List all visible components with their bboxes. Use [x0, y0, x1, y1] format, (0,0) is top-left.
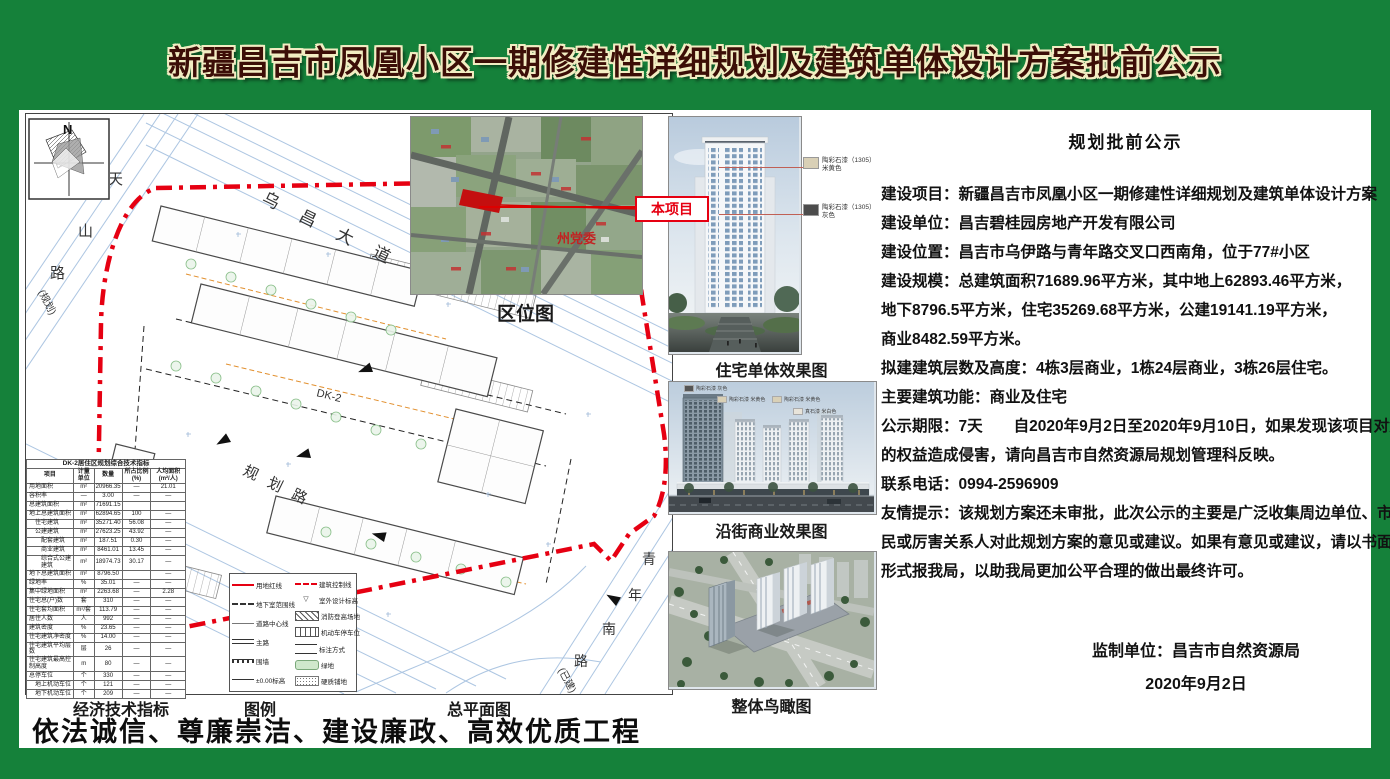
legend-symbol-mainroad — [232, 639, 254, 644]
eco-table-row: 住宅建筑平均层数层26—— — [27, 642, 186, 657]
notice-line: 建设规模：总建筑面积71689.96平方米，其中地上62893.46平方米， — [881, 267, 1370, 296]
residential-caption: 住宅单体效果图 — [668, 357, 875, 381]
eco-table-row: 住宅建筑最高控制高度m80—— — [27, 657, 186, 672]
legend-label: 主路 — [256, 637, 269, 647]
legend-col-2: 建筑控制线▽室外设计标高消防登高场地机动车停车位标注方式绿地硬质铺地 — [295, 576, 360, 689]
compass: N — [28, 118, 110, 200]
notice-line: 拟建建筑层数及高度：4栋3层商业，1栋24层商业，3栋26层住宅。 — [881, 354, 1370, 383]
legend-label: 绿地 — [321, 660, 334, 670]
commercial-rendering-image: 陶彩石漆 灰色陶彩石漆 米黄色陶彩石漆 米黄色真石漆 米白色 — [668, 381, 877, 515]
material-name: 陶彩石漆（1305） — [822, 204, 875, 211]
eco-table-row: 商业建筑m²8461.0113.45— — [27, 546, 186, 555]
site-leader-line — [479, 206, 637, 208]
legend-item: 机动车停车位 — [295, 627, 360, 637]
landmark-label: 州党委 — [556, 231, 596, 246]
legend-symbol-paving — [295, 676, 319, 686]
notice-heading: 规划批前公示 — [881, 128, 1370, 153]
material-color: 灰色 — [822, 212, 835, 219]
legend-symbol-thin — [232, 623, 254, 624]
notice-line: 公示期限：7天 自2020年9月2日至2020年9月10日，如果发现该项目对您 — [881, 412, 1370, 441]
legend-symbol-spot: ▽ — [295, 596, 317, 604]
eco-table-row: 绿地率%35.01—— — [27, 579, 186, 588]
legend-item: 用地红线 — [232, 580, 295, 590]
eco-table-row: 建筑密度%23.65—— — [27, 624, 186, 633]
legend-symbol-redline — [232, 584, 254, 586]
eco-table-row: 总建筑面积m²71691.15 — [27, 501, 186, 510]
commercial-material-callout: 陶彩石漆 米黄色 — [717, 396, 765, 403]
eco-table-row: 住宅套均面积m²/套113.79—— — [27, 606, 186, 615]
svg-text:路: 路 — [50, 265, 65, 282]
planning-notice-poster: 新疆昌吉市凤凰小区一期修建性详细规划及建筑单体设计方案批前公示 — [0, 0, 1390, 779]
legend-symbol-elev — [232, 679, 254, 680]
eco-table-row: 地上机动车位个121—— — [27, 681, 186, 690]
svg-text:青: 青 — [642, 551, 656, 567]
legend-symbol-dash — [232, 603, 254, 605]
legend-item: 主路 — [232, 637, 295, 647]
material-callout-beige: 陶彩石漆（1305） 米黄色 — [803, 157, 881, 173]
notice-date: 2020年9月2日 — [996, 670, 1390, 694]
material-label: 陶彩石漆 灰色 — [696, 385, 727, 392]
legend-item: 地下室范围线 — [232, 599, 295, 609]
notice-line: 民或厉害关系人对此规划方案的意见或建议。如果有意见或建议，请以书面 — [881, 528, 1370, 557]
notice-line: 建设单位：昌吉碧桂园房地产开发有限公司 — [881, 209, 1370, 238]
content-panel: 乌昌大道 天 山 路 (规划) 规划路 青 年 南 路 (已建) DK-2 — [19, 110, 1371, 748]
aerial-rendering-image — [668, 551, 877, 690]
svg-text:路: 路 — [574, 653, 588, 669]
notice-line: 建设位置：昌吉市乌伊路与青年路交叉口西南角，位于77#小区 — [881, 238, 1370, 267]
eco-table-row: 住宅总(户)数套310—— — [27, 597, 186, 606]
legend-label: 消防登高场地 — [321, 611, 360, 621]
callout-leader-2 — [719, 214, 803, 215]
legend-label: 室外设计标高 — [319, 595, 358, 605]
legend-item: 标注方式 — [295, 644, 360, 654]
legend-label: 道路中心线 — [256, 618, 289, 628]
eco-table-row: 地下机动车位个209—— — [27, 690, 186, 699]
legend-item: 消防登高场地 — [295, 611, 360, 621]
eco-table-row: 容积率—3.00—— — [27, 492, 186, 501]
legend-symbol-reddashdot — [295, 583, 317, 585]
legend-label: 围墙 — [256, 656, 269, 666]
legend-item: 道路中心线 — [232, 618, 295, 628]
legend-item: 建筑控制线 — [295, 579, 360, 589]
eco-table-row: 用地面积m²20966.35—21.01 — [27, 483, 186, 492]
legend-item: 硬质铺地 — [295, 676, 360, 686]
legend-label: 用地红线 — [256, 580, 282, 590]
legend-item: 围墙 — [232, 656, 295, 666]
svg-text:年: 年 — [628, 587, 642, 603]
callout-leader-1 — [719, 167, 803, 168]
material-callout-gray: 陶彩石漆（1305） 灰色 — [803, 204, 881, 220]
legend-label: 建筑控制线 — [319, 579, 352, 589]
notice-line: 商业8482.59平方米。 — [881, 325, 1370, 354]
notice-line: 主要建筑功能：商业及住宅 — [881, 383, 1370, 412]
slogan: 依法诚信、尊廉崇洁、建设廉政、高效优质工程 — [32, 710, 641, 749]
commercial-caption: 沿街商业效果图 — [668, 518, 875, 542]
notice-line: 形式报我局，以助我局更加公平合理的做出最终许可。 — [881, 557, 1370, 586]
svg-text:天: 天 — [108, 171, 123, 188]
north-label: N — [63, 122, 72, 137]
residential-rendering-image — [668, 116, 802, 355]
notice-body: 建设项目：新疆昌吉市凤凰小区一期修建性详细规划及建筑单体设计方案建设单位：昌吉碧… — [881, 180, 1370, 586]
legend-label: 标注方式 — [319, 644, 345, 654]
material-swatch — [793, 408, 803, 415]
commercial-material-callout: 陶彩石漆 米黄色 — [772, 396, 820, 403]
legend-symbol-hatch — [295, 611, 319, 621]
legend-box: 用地红线地下室范围线道路中心线主路围墙±0.00标高 建筑控制线▽室外设计标高消… — [229, 573, 357, 692]
svg-text:山: 山 — [78, 223, 93, 240]
legend-item: ±0.00标高 — [232, 675, 295, 685]
material-swatch — [772, 396, 782, 403]
aerial-caption: 整体鸟瞰图 — [668, 693, 875, 717]
material-swatch — [684, 385, 694, 392]
notice-line: 的权益造成侵害，请向昌吉市自然资源局规划管理科反映。 — [881, 441, 1370, 470]
eco-table-row: 居住人数人992—— — [27, 615, 186, 624]
legend-symbol-wall — [232, 659, 254, 663]
material-label: 陶彩石漆 米黄色 — [729, 396, 765, 403]
legend-symbol-parking — [295, 627, 319, 637]
legend-item: ▽室外设计标高 — [295, 595, 360, 605]
eco-table-row: 总停车位个330—— — [27, 672, 186, 681]
page-title: 新疆昌吉市凤凰小区一期修建性详细规划及建筑单体设计方案批前公示 — [0, 36, 1390, 84]
material-swatch — [717, 396, 727, 403]
eco-table-row: 配套建筑m²187.510.30— — [27, 537, 186, 546]
notice-line: 联系电话：0994-2596909 — [881, 470, 1370, 499]
eco-table-row: 住宅建筑m²35271.4056.08— — [27, 519, 186, 528]
legend-label: 硬质铺地 — [321, 676, 347, 686]
site-callout-box: 本项目 — [635, 196, 709, 222]
eco-table: DK-2居住区规划综合技术指标项目计量单位数量所占比例(%)人均面积(m²/人)… — [26, 459, 186, 699]
eco-table-row: 综合式公建建筑m²18974.7330.17— — [27, 555, 186, 570]
legend-col-1: 用地红线地下室范围线道路中心线主路围墙±0.00标高 — [232, 576, 295, 689]
notice-line: 友情提示：该规划方案还未审批，此次公示的主要是广泛收集周边单位、市 — [881, 499, 1370, 528]
legend-symbol-green — [295, 660, 319, 670]
legend-label: 地下室范围线 — [256, 599, 295, 609]
material-color: 米黄色 — [822, 165, 842, 172]
material-name: 陶彩石漆（1305） — [822, 157, 875, 164]
notice-supervisor: 监制单位：昌吉市自然资源局 — [996, 637, 1390, 661]
notice-line: 地下8796.5平方米，住宅35269.68平方米，公建19141.19平方米， — [881, 296, 1370, 325]
eco-table-row: 地上总建筑面积m²62894.65100— — [27, 510, 186, 519]
legend-item: 绿地 — [295, 660, 360, 670]
eco-table-row: 住宅建筑净密度%14.00—— — [27, 633, 186, 642]
location-map-caption: 区位图 — [410, 299, 641, 326]
commercial-material-callout: 真石漆 米白色 — [793, 408, 836, 415]
material-label: 陶彩石漆 米黄色 — [784, 396, 820, 403]
svg-text:南: 南 — [602, 621, 616, 637]
eco-table-row: 地下总建筑面积m²8796.50— — [27, 570, 186, 579]
material-swatch-beige — [803, 157, 819, 169]
legend-label: 机动车停车位 — [321, 627, 360, 637]
notice-line: 建设项目：新疆昌吉市凤凰小区一期修建性详细规划及建筑单体设计方案 — [881, 180, 1370, 209]
legend-label: ±0.00标高 — [256, 675, 285, 685]
eco-table-row: 集中绿地面积m²2263.68—2.28 — [27, 588, 186, 597]
material-swatch-gray — [803, 204, 819, 216]
legend-symbol-frac — [295, 644, 317, 654]
commercial-material-callout: 陶彩石漆 灰色 — [684, 385, 727, 392]
material-label: 真石漆 米白色 — [805, 408, 836, 415]
eco-table-row: 公建建筑m²27623.2543.92— — [27, 528, 186, 537]
